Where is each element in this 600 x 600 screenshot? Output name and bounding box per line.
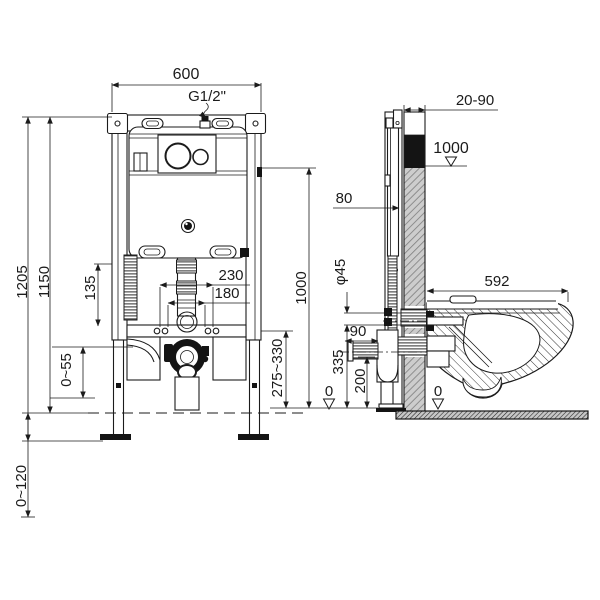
frame-crossbar: [127, 325, 246, 337]
dim-wall-thickness: 20-90: [456, 92, 494, 109]
frame-foot-right: [238, 434, 269, 440]
installation-drawing-page: 600 G1/2" 1205 1150 135 0~55 0~120 230 1…: [0, 0, 600, 600]
tank-bracket: [134, 153, 147, 171]
front-view-cistern: [129, 116, 249, 258]
drain-pipe-side: [377, 330, 398, 382]
fixing-bolt: [162, 328, 168, 334]
zero-level-marker-front: [324, 399, 335, 409]
bottom-slot-right: [210, 246, 236, 258]
label-inlet-thread: G1/2": [188, 88, 226, 105]
top-slot-left: [142, 119, 163, 129]
frame-foot-left: [100, 434, 131, 440]
seat-band: [427, 301, 558, 309]
dim-135: 135: [82, 275, 99, 300]
fixing-bolt: [213, 328, 219, 334]
fixing-rod: [427, 317, 463, 325]
dim-frame-width: 600: [173, 66, 200, 83]
dim-1000-front: 1000: [293, 271, 310, 304]
seat-hinge: [450, 296, 476, 303]
drain-chute: [175, 377, 199, 410]
zero-level-marker-side: [433, 399, 444, 409]
dim-90: 90: [350, 323, 367, 340]
dim-0-55: 0~55: [58, 353, 75, 387]
dim-bowl-depth: 592: [484, 273, 509, 290]
top-slot-right: [212, 119, 233, 129]
dim-200: 200: [352, 368, 369, 393]
frame-corner-plate-left: [108, 114, 128, 134]
level-1000: 1000: [433, 140, 469, 157]
dim-0-120: 0~120: [13, 465, 30, 507]
bottom-slot-left: [139, 246, 165, 258]
bowl-back-block-lower: [427, 351, 449, 367]
flush-connector: [401, 309, 427, 326]
floor-zero-side: 0: [434, 383, 442, 400]
frame-right-rail: [246, 115, 261, 340]
dim-height-total: 1205: [14, 265, 31, 298]
dim-180: 180: [214, 285, 239, 302]
dim-80: 80: [336, 190, 353, 207]
floor-slab: [396, 411, 588, 419]
dim-diameter-45: φ45: [332, 259, 349, 285]
wall-seal-zone: [404, 135, 425, 168]
fixing-bolt: [154, 328, 160, 334]
frame-wing-left: [127, 337, 160, 380]
dim-335: 335: [330, 349, 347, 374]
flush-button-large: [166, 144, 191, 169]
bowl-back-block: [427, 336, 455, 351]
supply-pipe-ribbed: [124, 255, 137, 320]
cistern-side-profile: [388, 128, 399, 256]
inlet-fitting: [200, 121, 210, 128]
dim-275-330: 275~330: [269, 339, 286, 398]
level-marker-1000: [446, 157, 457, 166]
fixing-bolt: [205, 328, 211, 334]
dim-height-frame: 1150: [36, 266, 53, 298]
dim-230: 230: [218, 267, 243, 284]
technical-drawing: 600 G1/2" 1205 1150 135 0~55 0~120 230 1…: [0, 0, 600, 600]
frame-corner-plate-right: [246, 114, 266, 134]
floor-zero-front: 0: [325, 383, 333, 400]
frame-wing-right: [213, 337, 246, 380]
flush-button-small: [193, 150, 208, 165]
